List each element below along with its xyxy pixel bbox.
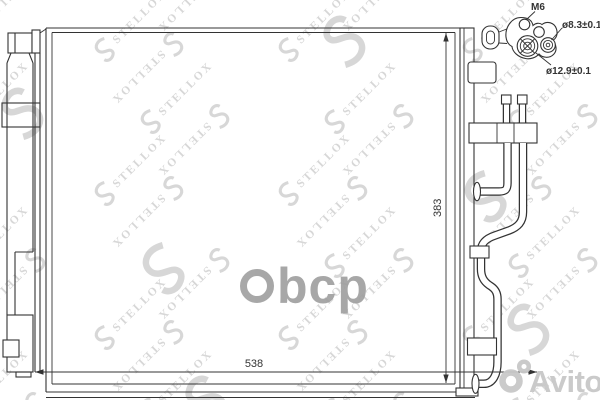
hole-8-3 <box>541 38 556 53</box>
pipe-clamp-large <box>468 338 497 355</box>
manifold-block <box>469 123 537 143</box>
hole-plain <box>534 27 545 38</box>
dimension-width-value: 538 <box>245 358 263 370</box>
mount-tab <box>468 62 496 83</box>
seller-logo-text: bcp <box>277 258 369 314</box>
hole-m6 <box>519 19 530 30</box>
label-hole-small: ø8.3±0.1 <box>562 20 600 31</box>
label-thread: M6 <box>531 2 545 13</box>
pipe-upper-flange <box>474 182 481 200</box>
label-hole-large: ø12.9±0.1 <box>546 66 591 77</box>
background <box>0 0 600 400</box>
avito-logo-text: Avito <box>529 364 600 399</box>
pipe-clamp-small <box>470 246 489 258</box>
condenser-technical-drawing: STELLOXSTELLOXSTELLOXSTELLOXSTELLOXSTELL… <box>0 0 600 400</box>
pipe-lower-flange <box>472 374 479 393</box>
listing-photo: STELLOXSTELLOXSTELLOXSTELLOXSTELLOXSTELL… <box>0 0 600 400</box>
bracket-slot-pad <box>482 26 499 49</box>
drier-tab <box>3 340 19 357</box>
drier-top-bracket <box>8 33 32 53</box>
dimension-height-value: 383 <box>432 199 444 217</box>
